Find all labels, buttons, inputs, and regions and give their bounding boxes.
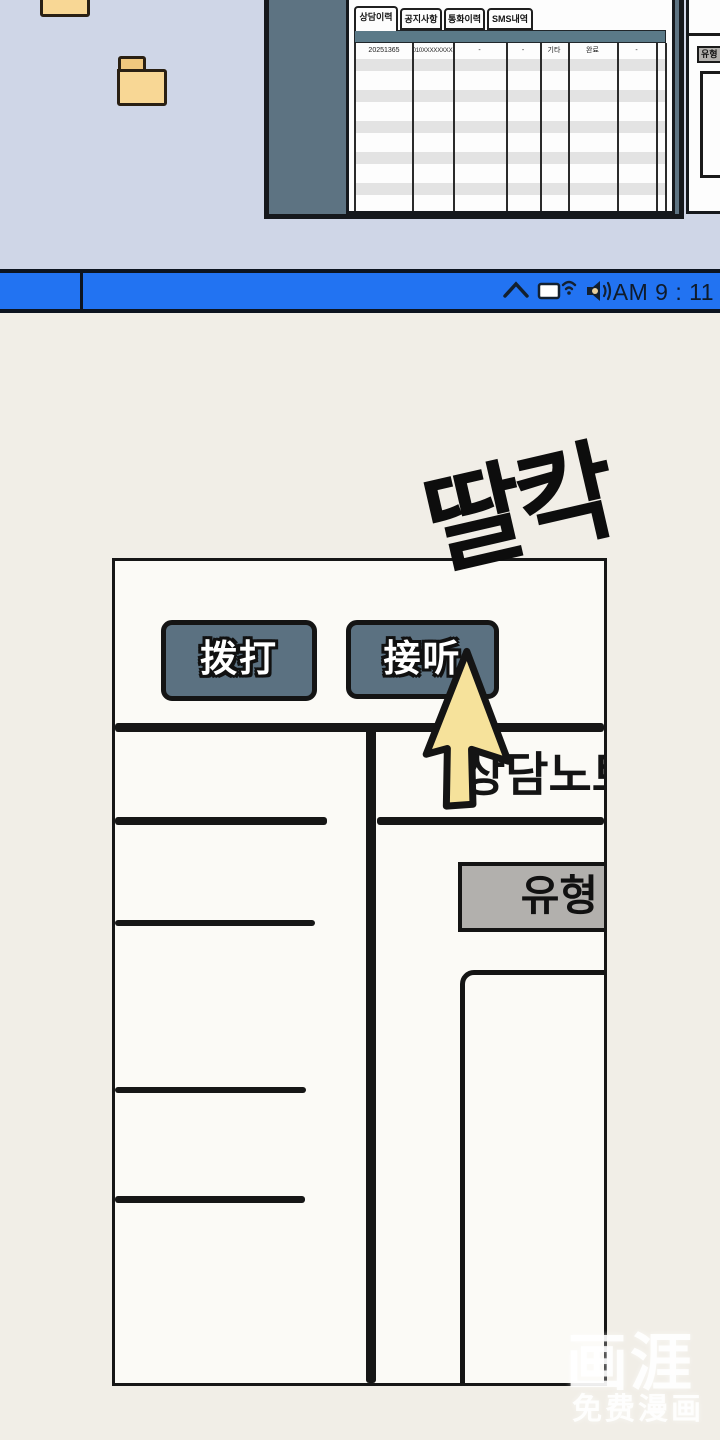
column-divider [540, 43, 542, 211]
page: 상담이력 공지사항 통화이력 SMS내역 20251365 010XXXXXXX… [0, 0, 720, 1440]
consult-history-table: 20251365 010XXXXXXXX - - 기타 완료 - [354, 43, 667, 211]
crm-window-content: 상담이력 공지사항 통화이력 SMS내역 20251365 010XXXXXXX… [346, 0, 675, 214]
dial-button[interactable]: 拨打 [161, 620, 317, 701]
display-icon[interactable] [537, 282, 561, 300]
side-note-window: 유형 [686, 0, 720, 214]
tab-call-history[interactable]: 통화이력 [444, 8, 485, 30]
taskbar-separator [80, 273, 83, 309]
cell-category: 기타 [540, 45, 568, 57]
panel-divider-vertical [366, 727, 376, 1383]
desktop-background: 상담이력 공지사항 통화이력 SMS내역 20251365 010XXXXXXX… [0, 0, 720, 269]
folder-icon[interactable] [40, 0, 90, 17]
form-line [115, 1196, 305, 1203]
watermark-tagline: 免费漫画 [572, 1384, 704, 1428]
column-divider [506, 43, 508, 211]
cell-dash: - [506, 45, 540, 57]
column-divider [568, 43, 570, 211]
wifi-icon[interactable] [560, 278, 578, 296]
form-line [115, 1087, 306, 1093]
column-divider [412, 43, 414, 211]
crm-window: 상담이력 공지사항 통화이력 SMS내역 20251365 010XXXXXXX… [264, 0, 684, 219]
cell-dash: - [617, 45, 656, 57]
tab-notices[interactable]: 공지사항 [400, 8, 442, 30]
form-line [115, 920, 315, 926]
column-divider [453, 43, 455, 211]
folder-body [117, 69, 167, 106]
chevron-up-icon[interactable] [502, 281, 530, 299]
taskbar: AM 9 : 11 [0, 269, 720, 313]
table-header-bar [354, 30, 666, 43]
tab-sms-history[interactable]: SMS내역 [487, 8, 533, 30]
form-line [115, 817, 327, 825]
side-window-divider [689, 33, 720, 36]
folder-icon[interactable] [117, 56, 167, 106]
column-divider [656, 43, 658, 211]
cell-dash: - [453, 45, 506, 57]
tab-consult-history[interactable]: 상담이력 [354, 6, 398, 31]
cell-phone: 010XXXXXXXX [412, 45, 453, 57]
folder-body [40, 0, 90, 17]
cell-record-id: 20251365 [356, 45, 412, 57]
type-button[interactable]: 유형 [458, 862, 607, 932]
column-divider [617, 43, 619, 211]
cell-status: 완료 [568, 45, 617, 57]
type-button-small[interactable]: 유형 [697, 46, 720, 63]
note-textarea-small[interactable] [700, 71, 720, 178]
taskbar-clock[interactable]: AM 9 : 11 [608, 279, 714, 306]
